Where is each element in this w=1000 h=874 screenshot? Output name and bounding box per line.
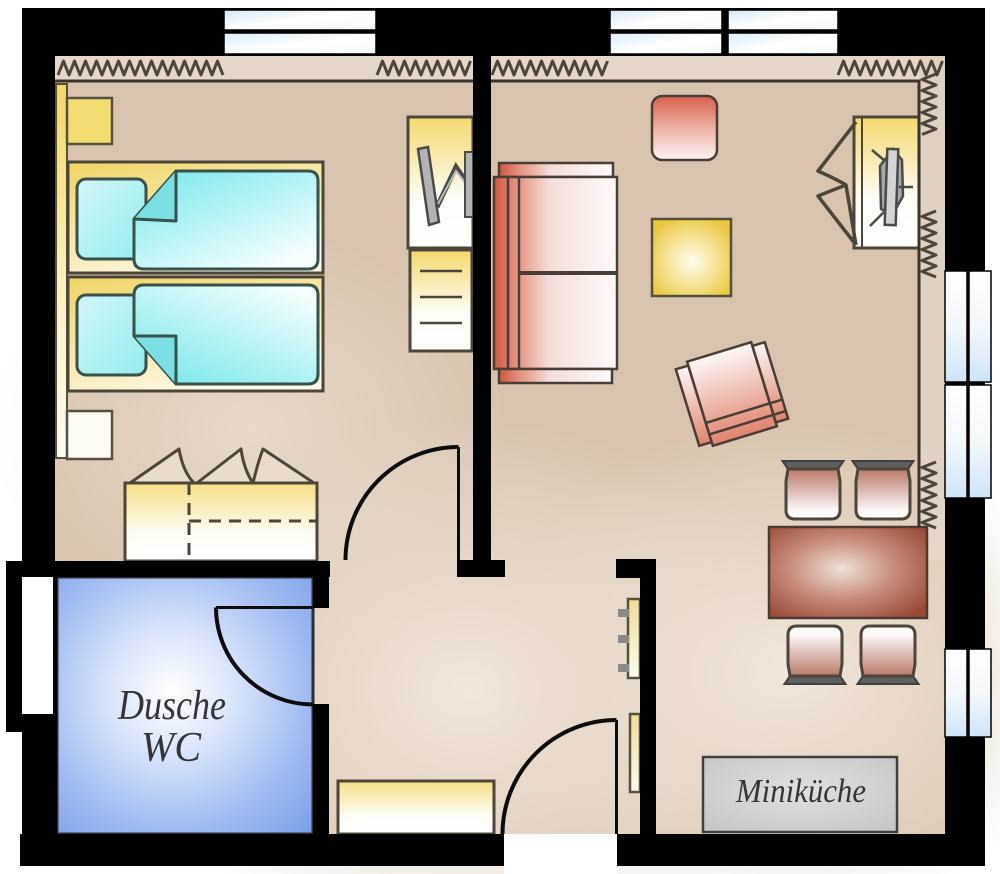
- svg-text:WC: WC: [141, 725, 202, 771]
- svg-text:Miniküche: Miniküche: [735, 773, 866, 810]
- svg-text:Dusche: Dusche: [117, 683, 226, 729]
